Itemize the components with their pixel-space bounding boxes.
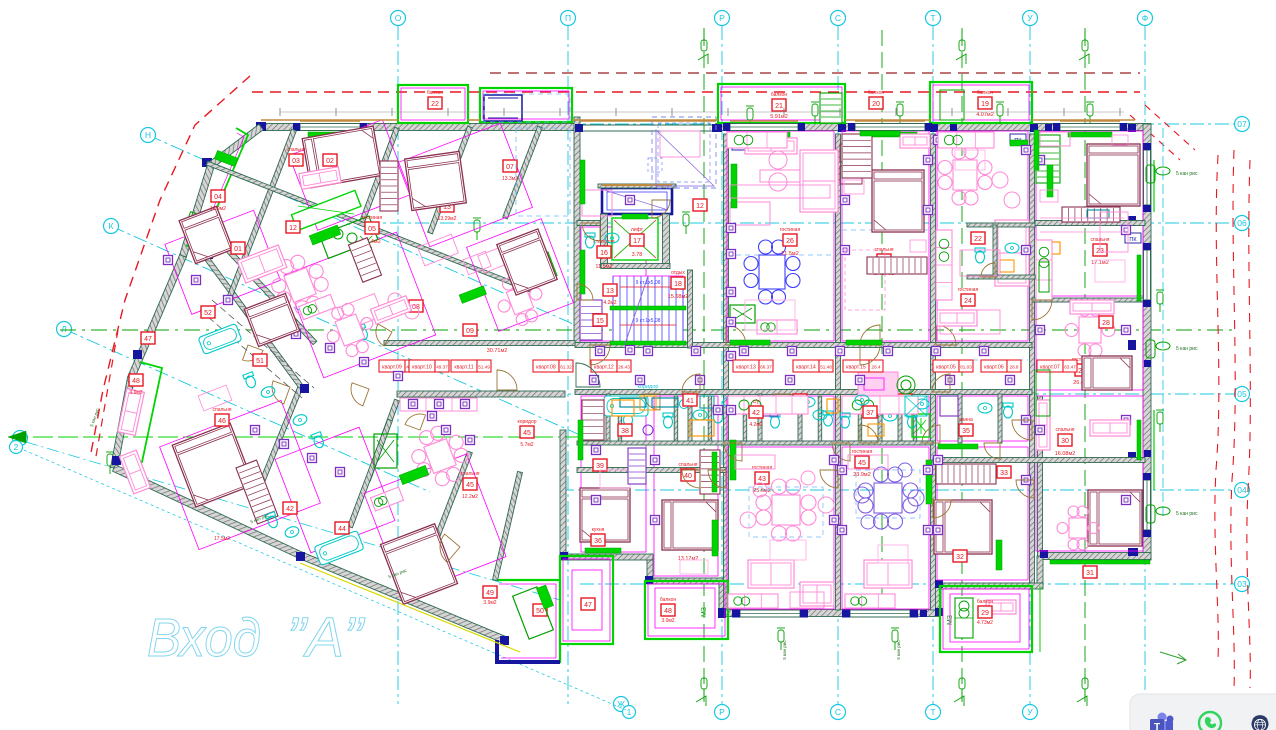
- svg-text:29: 29: [981, 610, 989, 617]
- svg-text:25.6м2: 25.6м2: [753, 488, 771, 494]
- svg-text:Ф: Ф: [1142, 13, 1148, 23]
- svg-text:4.07м2: 4.07м2: [976, 112, 994, 118]
- svg-text:17.1м2: 17.1м2: [1091, 260, 1109, 266]
- svg-text:31: 31: [1086, 570, 1094, 577]
- svg-text:Р: Р: [719, 13, 725, 23]
- svg-text:2: 2: [14, 442, 19, 452]
- svg-text:гостиная: гостиная: [362, 215, 383, 221]
- svg-text:спальня: спальня: [1056, 427, 1075, 433]
- svg-text:Т: Т: [930, 13, 935, 23]
- svg-text:13.29м2: 13.29м2: [438, 216, 457, 222]
- svg-text:51: 51: [256, 358, 264, 365]
- svg-text:42: 42: [286, 506, 294, 513]
- svg-text:51.49: 51.49: [478, 365, 490, 370]
- svg-text:кварт.06: кварт.06: [984, 365, 1004, 371]
- svg-text:кварт.08: кварт.08: [536, 365, 556, 371]
- svg-text:отдых: отдых: [671, 270, 685, 276]
- svg-text:37: 37: [866, 410, 874, 417]
- svg-text:столовая: столовая: [593, 239, 615, 245]
- svg-text:17: 17: [633, 238, 641, 245]
- svg-text:03: 03: [292, 158, 300, 165]
- svg-text:47: 47: [144, 336, 152, 343]
- svg-text:19: 19: [981, 101, 989, 108]
- svg-text:63.47: 63.47: [1064, 365, 1076, 370]
- svg-text:ПК: ПК: [1129, 237, 1137, 243]
- svg-text:45: 45: [466, 482, 474, 489]
- svg-text:16: 16: [600, 250, 608, 257]
- svg-text:С: С: [835, 13, 841, 23]
- svg-text:39: 39: [596, 463, 604, 470]
- svg-text:04: 04: [214, 194, 222, 201]
- svg-text:05: 05: [368, 226, 376, 233]
- svg-text:22: 22: [431, 101, 439, 108]
- svg-text:50: 50: [536, 608, 544, 615]
- svg-text:коридор: коридор: [517, 419, 536, 425]
- svg-text:26: 26: [786, 238, 794, 245]
- svg-text:кварт.14: кварт.14: [796, 365, 816, 371]
- svg-text:К: К: [109, 221, 114, 231]
- svg-text:”А”: ”А”: [287, 605, 365, 668]
- svg-text:07: 07: [506, 164, 514, 171]
- svg-text:15.68м2: 15.68м2: [668, 294, 689, 300]
- svg-text:3.9м2: 3.9м2: [129, 390, 142, 396]
- svg-text:Вход: Вход: [147, 608, 261, 668]
- svg-text:22: 22: [974, 236, 982, 243]
- svg-text:5 кан рис: 5 кан рис: [1176, 346, 1198, 352]
- svg-text:балкон: балкон: [977, 90, 993, 96]
- svg-text:48: 48: [664, 608, 672, 615]
- svg-text:48: 48: [132, 378, 140, 385]
- svg-text:9 ст.1х5,08: 9 ст.1х5,08: [636, 280, 661, 286]
- svg-text:21: 21: [775, 103, 783, 110]
- svg-text:02: 02: [326, 158, 334, 165]
- svg-text:Т: Т: [930, 707, 935, 717]
- svg-text:кварт.13: кварт.13: [736, 365, 756, 371]
- svg-text:гостиная: гостиная: [752, 465, 773, 471]
- svg-text:кухня: кухня: [592, 527, 605, 533]
- svg-text:спальня: спальня: [679, 462, 698, 468]
- svg-text:40: 40: [684, 473, 692, 480]
- svg-text:38: 38: [621, 428, 629, 435]
- svg-text:кварт.05: кварт.05: [936, 365, 956, 371]
- svg-text:66.37: 66.37: [760, 365, 772, 370]
- svg-text:гостиная: гостиная: [780, 227, 801, 233]
- svg-text:36: 36: [594, 538, 602, 545]
- svg-text:балкон: балкон: [427, 90, 443, 96]
- svg-text:балкон: балкон: [660, 597, 676, 603]
- svg-text:12: 12: [696, 203, 704, 210]
- svg-text:03: 03: [1237, 579, 1247, 589]
- svg-text:балкон: балкон: [868, 90, 884, 96]
- svg-text:спальня: спальня: [461, 471, 480, 477]
- svg-text:30: 30: [1061, 438, 1069, 445]
- svg-text:52: 52: [204, 310, 212, 317]
- svg-text:14.9м2: 14.9м2: [210, 206, 226, 212]
- svg-text:О: О: [395, 13, 402, 23]
- svg-text:кварт.15: кварт.15: [846, 365, 866, 371]
- svg-text:У: У: [1027, 13, 1033, 23]
- svg-text:Р: Р: [719, 707, 725, 717]
- svg-text:5.91м2: 5.91м2: [770, 114, 788, 120]
- svg-text:9 ст.1х5,08: 9 ст.1х5,08: [636, 318, 661, 324]
- svg-text:81.03: 81.03: [960, 365, 972, 370]
- svg-text:26.43: 26.43: [618, 365, 630, 370]
- svg-text:32: 32: [956, 554, 964, 561]
- svg-text:30.71м2: 30.71м2: [487, 348, 508, 354]
- svg-text:Л: Л: [61, 324, 67, 334]
- svg-text:04: 04: [1237, 485, 1247, 495]
- svg-text:13.17м2: 13.17м2: [678, 556, 699, 562]
- svg-text:балкон: балкон: [977, 599, 993, 605]
- svg-text:кварт.12: кварт.12: [594, 365, 614, 371]
- svg-text:09: 09: [466, 328, 474, 335]
- svg-text:П: П: [565, 13, 571, 23]
- svg-text:51.48: 51.48: [820, 365, 832, 370]
- svg-text:с/у: с/у: [753, 399, 760, 405]
- svg-text:У: У: [1027, 707, 1033, 717]
- svg-text:3.9м2: 3.9м2: [483, 600, 496, 606]
- svg-text:5 кан рис: 5 кан рис: [782, 640, 787, 660]
- svg-text:кварт.11: кварт.11: [454, 365, 473, 371]
- svg-text:06: 06: [1237, 218, 1247, 228]
- svg-text:гостиная: гостиная: [852, 449, 873, 455]
- svg-text:5 кан рис: 5 кан рис: [1176, 511, 1198, 517]
- svg-text:44: 44: [338, 526, 346, 533]
- svg-text:24: 24: [964, 298, 972, 305]
- svg-text:кварт.09: кварт.09: [382, 365, 402, 371]
- svg-text:12: 12: [289, 225, 297, 232]
- svg-text:ванна: ванна: [959, 417, 973, 423]
- svg-text:Н: Н: [145, 130, 151, 140]
- svg-text:кварт.10: кварт.10: [412, 365, 432, 371]
- svg-text:балкон: балкон: [771, 92, 787, 98]
- svg-text:17.5м2: 17.5м2: [214, 536, 230, 542]
- svg-text:5 кан рис: 5 кан рис: [1176, 171, 1198, 177]
- svg-text:01: 01: [234, 246, 242, 253]
- svg-text:5 кан рис: 5 кан рис: [896, 640, 901, 660]
- svg-text:гостиная: гостиная: [958, 287, 979, 293]
- svg-text:07: 07: [1237, 119, 1247, 129]
- svg-text:49: 49: [486, 590, 494, 597]
- svg-text:42: 42: [752, 410, 760, 417]
- svg-text:23.9м2: 23.9м2: [853, 472, 871, 478]
- svg-text:47: 47: [584, 602, 592, 609]
- svg-text:16.08м2: 16.08м2: [1055, 451, 1076, 457]
- svg-text:15: 15: [596, 318, 604, 325]
- svg-text:спальня: спальня: [287, 147, 306, 153]
- svg-text:05: 05: [1237, 389, 1247, 399]
- svg-text:41: 41: [686, 398, 694, 405]
- svg-text:лифт: лифт: [631, 227, 644, 233]
- svg-text:45: 45: [858, 460, 866, 467]
- svg-text:18: 18: [674, 281, 682, 288]
- svg-text:28: 28: [1102, 320, 1110, 327]
- svg-text:21.5м2: 21.5м2: [781, 251, 799, 257]
- svg-text:49.37: 49.37: [436, 365, 448, 370]
- svg-text:3.78: 3.78: [632, 252, 643, 258]
- svg-text:33: 33: [1000, 470, 1008, 477]
- svg-text:1: 1: [627, 707, 632, 717]
- svg-text:С: С: [835, 707, 841, 717]
- svg-text:МЗ: МЗ: [947, 615, 954, 625]
- svg-text:5.7м2: 5.7м2: [520, 442, 533, 448]
- svg-text:28.4: 28.4: [872, 365, 881, 370]
- svg-text:12.2м2: 12.2м2: [462, 494, 478, 500]
- svg-text:13: 13: [606, 288, 614, 295]
- svg-text:коридор: коридор: [638, 384, 659, 390]
- svg-text:4.2м2: 4.2м2: [749, 422, 762, 428]
- svg-text:46: 46: [218, 418, 226, 425]
- svg-text:11.5м2: 11.5м2: [595, 264, 612, 270]
- svg-text:3.0м2: 3.0м2: [661, 618, 674, 624]
- svg-text:спальня: спальня: [213, 407, 232, 413]
- svg-text:28.8: 28.8: [1010, 365, 1019, 370]
- svg-text:61.32: 61.32: [560, 365, 572, 370]
- svg-text:МЗ: МЗ: [701, 607, 708, 617]
- svg-text:35: 35: [962, 428, 970, 435]
- svg-text:4.73м2: 4.73м2: [977, 620, 993, 626]
- svg-text:4.2м2: 4.2м2: [603, 300, 616, 306]
- svg-text:T: T: [1154, 722, 1160, 730]
- svg-text:43: 43: [758, 476, 766, 483]
- svg-text:спальня: спальня: [875, 247, 894, 253]
- svg-text:20: 20: [872, 101, 880, 108]
- svg-text:45: 45: [523, 430, 531, 437]
